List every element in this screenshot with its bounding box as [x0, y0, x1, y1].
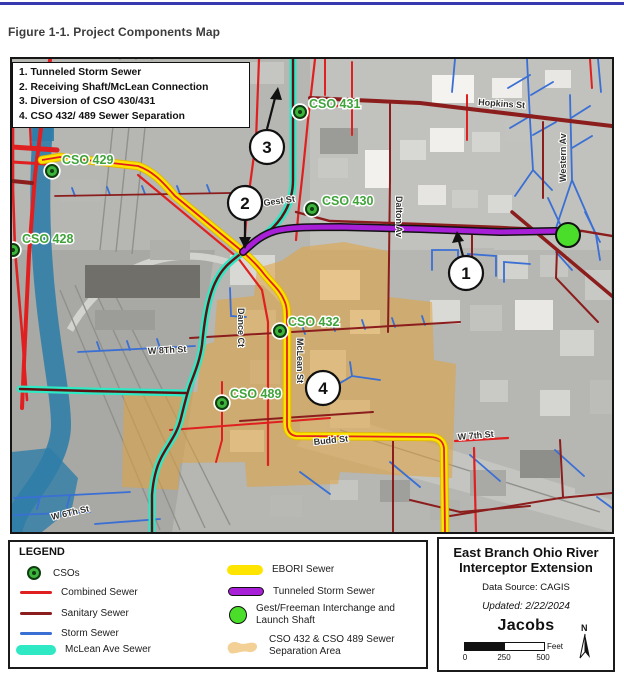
- component-key-item-3: 3. Diversion of CSO 430/431: [19, 95, 243, 110]
- cso-432-marker: [273, 324, 288, 339]
- legend-item-separation: CSO 432 & CSO 489 Sewer Separation Area: [224, 634, 395, 657]
- cso-429-label: CSO 429: [62, 153, 113, 167]
- combined-sewer-swatch: [20, 591, 52, 594]
- scale-unit: Feet: [547, 642, 563, 651]
- cso-489-marker: [215, 396, 230, 411]
- ebori-sewer-swatch: [227, 565, 263, 575]
- storm-sewer-swatch: [20, 632, 52, 635]
- cso-430-label: CSO 430: [322, 194, 373, 208]
- cso-429-marker: [45, 164, 60, 179]
- cso-489-label: CSO 489: [230, 387, 281, 401]
- updated-date: Updated: 2/22/2024: [439, 601, 613, 612]
- launch-shaft-swatch: [229, 606, 247, 624]
- legend-title: LEGEND: [19, 546, 65, 558]
- street-western: Western Av: [558, 133, 568, 182]
- legend-item-sanitary: Sanitary Sewer: [20, 608, 129, 619]
- street-mclean: McLean St: [295, 338, 305, 383]
- component-key-item-4: 4. CSO 432/ 489 Sewer Separation: [19, 110, 243, 125]
- map-title-block: East Branch Ohio River Interceptor Exten…: [437, 537, 615, 672]
- svg-text:2: 2: [240, 194, 249, 213]
- svg-text:4: 4: [318, 379, 328, 398]
- cso-431-label: CSO 431: [309, 97, 360, 111]
- cso-428-label: CSO 428: [22, 232, 73, 246]
- cso-430-marker: [305, 202, 320, 217]
- cso-431-marker: [293, 105, 308, 120]
- sanitary-sewer-swatch: [20, 612, 52, 615]
- cso-432-label: CSO 432: [288, 315, 339, 329]
- top-rule: [0, 2, 624, 5]
- data-source: Data Source: CAGIS: [439, 582, 613, 593]
- scale-bar: [464, 642, 545, 651]
- separation-area-swatch: [224, 635, 260, 657]
- map-canvas: CSO 428 CSO 429 CSO 430 CSO 431 CSO 432 …: [12, 59, 612, 532]
- component-key-box: 1. Tunneled Storm Sewer 2. Receiving Sha…: [12, 62, 250, 128]
- legend: LEGEND CSOs Combined Sewer Sanitary Sewe…: [8, 540, 428, 669]
- svg-text:3: 3: [262, 138, 271, 157]
- tunneled-sewer-swatch: [228, 587, 264, 596]
- figure-title: Figure 1-1. Project Components Map: [8, 25, 220, 39]
- project-map: CSO 428 CSO 429 CSO 430 CSO 431 CSO 432 …: [10, 57, 614, 534]
- cso-428-marker: [12, 243, 21, 258]
- street-dalton: Dalton Av: [394, 196, 404, 237]
- cso-swatch-icon: [24, 563, 44, 583]
- legend-item-ebori: EBORI Sewer: [227, 564, 334, 575]
- scale-bar-empty: [505, 642, 545, 651]
- legend-item-tunneled: Tunneled Storm Sewer: [228, 586, 375, 597]
- legend-item-storm: Storm Sewer: [20, 628, 119, 639]
- scale-tick-0: 0: [463, 653, 467, 662]
- svg-text:1: 1: [461, 264, 470, 283]
- mclean-sewer-swatch: [16, 645, 56, 655]
- legend-item-mclean: McLean Ave Sewer: [16, 644, 151, 655]
- street-w8th: W 8Th St: [148, 344, 187, 356]
- map-title: East Branch Ohio River Interceptor Exten…: [439, 546, 613, 575]
- scale-tick-500: 500: [536, 653, 549, 662]
- component-key-item-1: 1. Tunneled Storm Sewer: [19, 66, 243, 81]
- legend-item-combined: Combined Sewer: [20, 587, 138, 598]
- figure-page: Figure 1-1. Project Components Map: [0, 0, 624, 694]
- component-key-item-2: 2. Receiving Shaft/McLean Connection: [19, 81, 243, 96]
- legend-item-shaft: Gest/Freeman Interchange and Launch Shaf…: [229, 603, 395, 626]
- legend-item-csos: CSOs: [24, 563, 80, 583]
- north-label: N: [581, 623, 588, 633]
- component-marker-4: 4: [306, 371, 340, 405]
- scale-bar-filled: [464, 642, 505, 651]
- street-dance: Dance Ct: [236, 308, 246, 347]
- scale-tick-250: 250: [497, 653, 510, 662]
- launch-shaft-marker: [556, 223, 580, 247]
- north-arrow-icon: [577, 633, 593, 661]
